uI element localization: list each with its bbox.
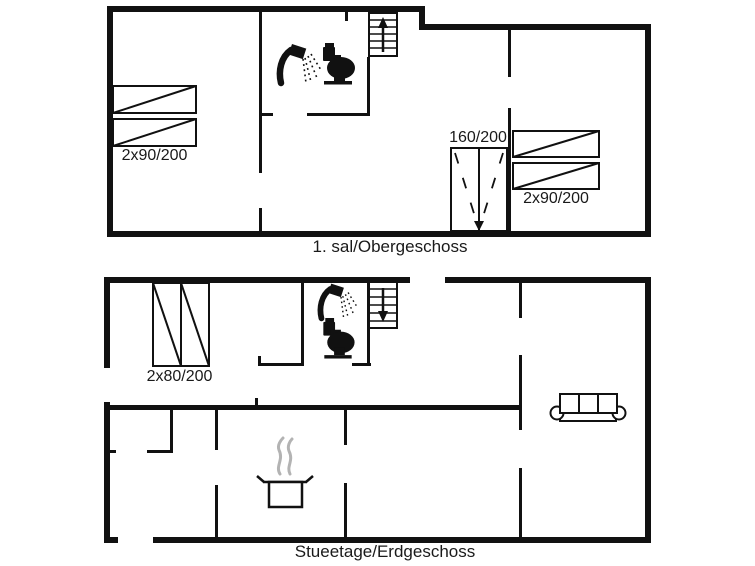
wall-segment	[307, 113, 370, 116]
wall-segment	[301, 283, 304, 365]
shower-icon	[275, 41, 322, 86]
wall-segment	[645, 277, 651, 543]
wall-segment	[215, 410, 218, 450]
wall-segment	[170, 410, 173, 452]
wall-segment	[519, 355, 522, 430]
wall-segment	[258, 363, 304, 366]
wall-segment	[104, 277, 110, 368]
double-bed-symbol	[112, 85, 197, 147]
wall-segment	[344, 483, 347, 537]
wall-segment	[104, 537, 118, 543]
wall-segment	[147, 450, 173, 453]
wall-segment	[519, 283, 522, 318]
bed-size-label: 2x80/200	[137, 368, 222, 386]
wall-segment	[367, 57, 370, 116]
wall-segment	[259, 208, 262, 231]
wall-segment	[259, 113, 273, 116]
bed-size-label: 2x90/200	[112, 147, 197, 165]
floor-plan: 2x90/200 160/200 2x90/200 1. sal/Oberges…	[0, 0, 755, 566]
double-bed-symbol	[152, 282, 210, 367]
upper-floor-caption: 1. sal/Obergeschoss	[240, 238, 540, 257]
ground-floor-caption: Stueetage/Erdgeschoss	[235, 543, 535, 562]
sofa-icon	[549, 390, 627, 426]
wall-segment	[519, 468, 522, 537]
wall-segment	[258, 356, 261, 363]
toilet-icon	[319, 43, 356, 86]
wardrobe-size-label: 160/200	[443, 129, 513, 147]
wall-segment	[445, 277, 651, 283]
wall-segment	[508, 108, 511, 231]
wall-segment	[645, 24, 651, 237]
double-bed-symbol	[512, 130, 600, 190]
wall-segment	[255, 398, 258, 405]
stairs-up-icon	[368, 12, 398, 57]
wall-segment	[259, 12, 262, 173]
wall-segment	[508, 30, 511, 77]
wall-segment	[344, 410, 347, 445]
wall-segment	[104, 402, 110, 543]
wall-segment	[110, 450, 116, 453]
wall-segment	[215, 485, 218, 537]
stairs-down-icon	[368, 281, 398, 329]
toilet-icon	[319, 318, 356, 360]
bed-size-label: 2x90/200	[512, 190, 600, 208]
wardrobe-symbol	[450, 147, 508, 232]
wall-segment	[345, 12, 348, 21]
wall-segment	[419, 24, 651, 30]
wall-segment	[104, 277, 410, 283]
cooking-pot-icon	[256, 436, 316, 508]
shower-icon	[315, 281, 359, 321]
